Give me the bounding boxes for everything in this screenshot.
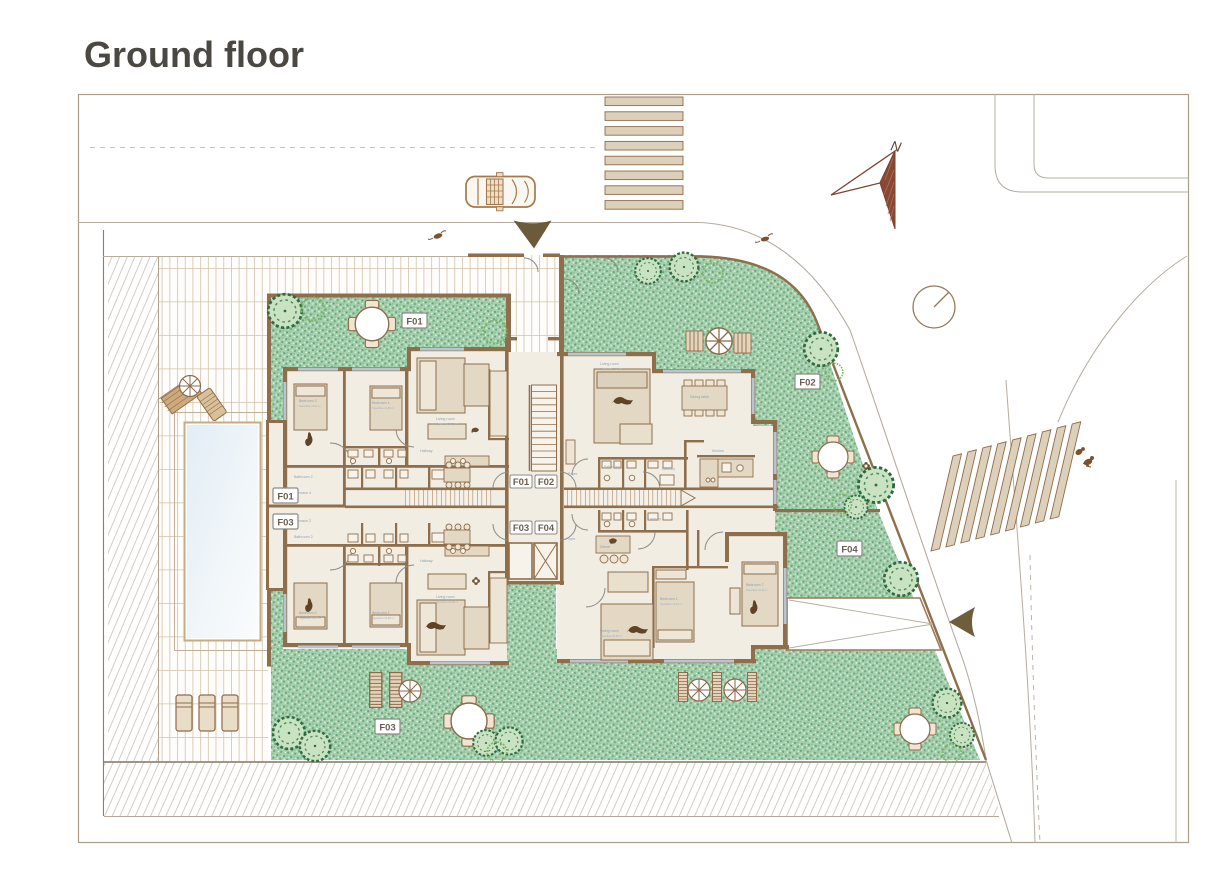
svg-text:Superficie 11.62 m: Superficie 11.62 m <box>299 616 320 620</box>
svg-text:F01: F01 <box>513 477 530 488</box>
svg-text:Bedroom 2: Bedroom 2 <box>299 611 317 615</box>
svg-text:Living room: Living room <box>600 362 619 366</box>
svg-text:F03: F03 <box>277 518 293 529</box>
svg-text:Kitchen: Kitchen <box>712 449 724 453</box>
svg-text:Superficie 24.90 m: Superficie 24.90 m <box>436 600 458 604</box>
svg-text:Superficie 11.30 m: Superficie 11.30 m <box>746 588 767 592</box>
svg-text:Living room: Living room <box>436 417 455 421</box>
svg-text:Bedroom 2: Bedroom 2 <box>299 399 317 403</box>
svg-text:Laundry: Laundry <box>662 467 675 471</box>
svg-text:Dinner: Dinner <box>600 545 611 549</box>
svg-text:Bedroom 2: Bedroom 2 <box>746 583 764 587</box>
svg-text:Laundry: Laundry <box>648 517 661 521</box>
svg-text:Living room: Living room <box>600 629 619 633</box>
svg-text:F01: F01 <box>277 492 294 503</box>
svg-text:Foyer: Foyer <box>566 537 576 541</box>
svg-text:Superficie 26.40 m: Superficie 26.40 m <box>600 367 622 371</box>
svg-text:Bedroom 1: Bedroom 1 <box>372 401 390 405</box>
svg-text:N: N <box>889 137 903 155</box>
svg-text:Hallway: Hallway <box>420 449 433 453</box>
svg-text:F03: F03 <box>379 723 395 734</box>
svg-text:F02: F02 <box>799 378 815 389</box>
svg-text:F04: F04 <box>841 545 858 556</box>
svg-text:Superficie 12.80 m: Superficie 12.80 m <box>372 616 394 620</box>
svg-text:Superficie 12.80 m: Superficie 12.80 m <box>372 406 394 410</box>
svg-text:Hallway: Hallway <box>420 559 433 563</box>
svg-text:Dining table: Dining table <box>690 395 709 399</box>
svg-text:F04: F04 <box>538 523 555 534</box>
svg-text:Living room: Living room <box>436 595 455 599</box>
svg-text:Foyer: Foyer <box>568 472 578 476</box>
svg-text:Superficie 12.10 m: Superficie 12.10 m <box>660 602 682 606</box>
svg-text:Bedroom 1: Bedroom 1 <box>372 611 390 615</box>
svg-text:F01: F01 <box>406 317 423 328</box>
svg-text:Bedroom 1: Bedroom 1 <box>660 597 678 601</box>
svg-text:Superficie 11.62 m: Superficie 11.62 m <box>299 404 320 408</box>
svg-text:Bathroom: Bathroom <box>604 465 620 469</box>
svg-text:Superficie 24.90 m: Superficie 24.90 m <box>436 422 458 426</box>
svg-text:Bathroom 2: Bathroom 2 <box>294 475 313 479</box>
svg-text:Superficie 26.40 m: Superficie 26.40 m <box>600 634 622 638</box>
svg-text:F03: F03 <box>513 523 529 534</box>
svg-text:F02: F02 <box>538 477 554 488</box>
svg-text:Bathroom 2: Bathroom 2 <box>294 535 313 539</box>
